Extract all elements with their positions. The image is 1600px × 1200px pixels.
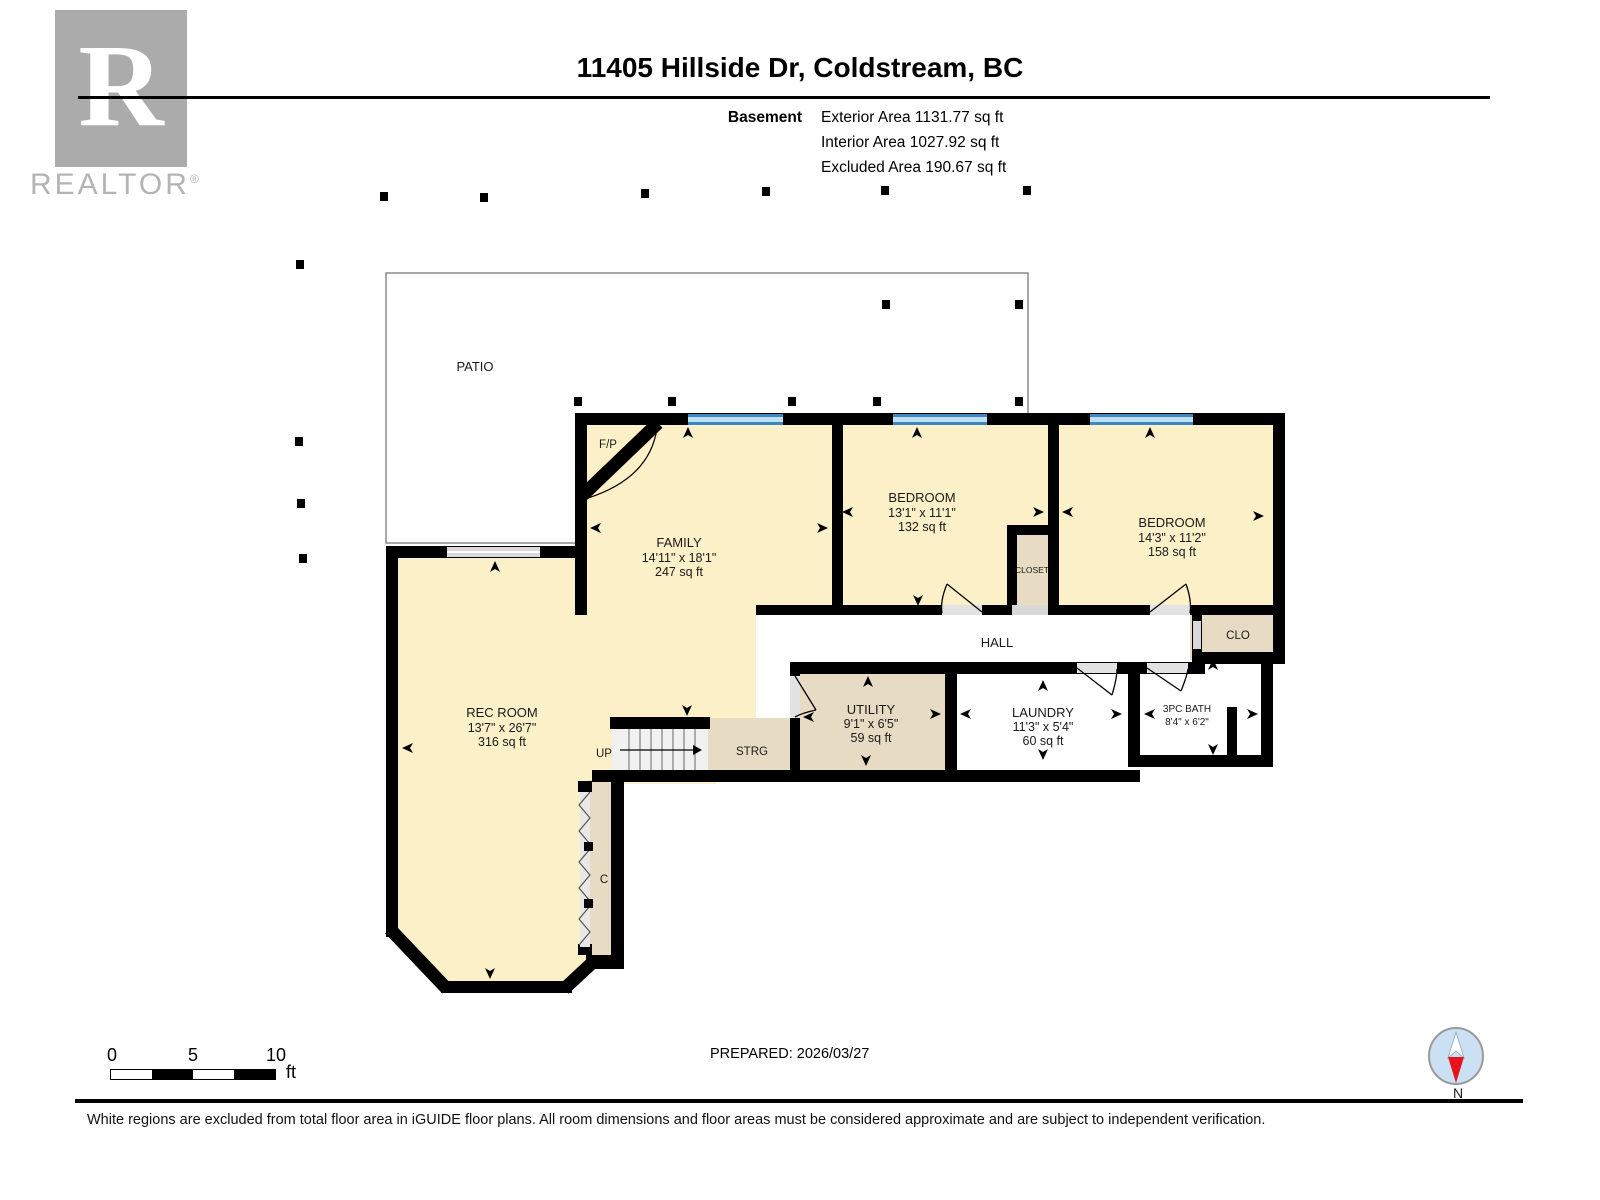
- rec-room-dims: 13'7" x 26'7": [468, 721, 537, 735]
- closet-opening: [1012, 605, 1048, 615]
- scale-tick-5: 5: [188, 1045, 198, 1066]
- bedroom2-name: BEDROOM: [1138, 515, 1205, 530]
- family-area: 247 sq ft: [655, 565, 703, 579]
- bedroom1-name: BEDROOM: [888, 490, 955, 505]
- utility-dims: 9'1" x 6'5": [844, 717, 899, 731]
- bedroom2-area: 158 sq ft: [1148, 545, 1196, 559]
- scale-bar: [110, 1069, 276, 1080]
- laundry-name: LAUNDRY: [1012, 705, 1074, 720]
- rec-room-fill: [386, 546, 596, 987]
- window-family: [688, 414, 783, 425]
- prepared-date: PREPARED: 2026/03/27: [710, 1046, 869, 1062]
- laundry-area: 60 sq ft: [1023, 734, 1065, 748]
- rec-room-name: REC ROOM: [466, 705, 538, 720]
- hall-label: HALL: [981, 635, 1014, 650]
- bedroom1-area: 132 sq ft: [898, 520, 946, 534]
- disclaimer-text: White regions are excluded from total fl…: [87, 1112, 1487, 1128]
- bedroom2-dims: 14'3" x 11'2": [1138, 531, 1206, 545]
- family-dims: 14'11" x 18'1": [642, 551, 717, 565]
- clo-label: CLO: [1226, 630, 1250, 642]
- stairs: [612, 729, 708, 770]
- utility-area: 59 sq ft: [851, 731, 893, 745]
- scale-tick-0: 0: [107, 1045, 117, 1066]
- utility-name: UTILITY: [847, 702, 896, 717]
- rec-room-area: 316 sq ft: [478, 735, 526, 749]
- c-closet-label: C: [600, 874, 608, 886]
- up-label: UP: [596, 748, 612, 760]
- floor-plan: PATIO F/P FAMILY 14'11" x 18'1" 247 sq f…: [0, 0, 1600, 1200]
- scale-unit: ft: [286, 1062, 296, 1083]
- closet-label: CLOSET: [1015, 565, 1049, 575]
- laundry-dims: 11'3" x 5'4": [1013, 720, 1074, 734]
- bedroom1-dims: 13'1" x 11'1": [888, 506, 956, 520]
- fireplace-label: F/P: [599, 439, 617, 451]
- laundry-door-opening: [1077, 663, 1117, 673]
- patio-label: PATIO: [456, 359, 493, 374]
- window-bedroom2: [1090, 414, 1193, 425]
- compass-icon: N: [1429, 1028, 1483, 1101]
- footer-rule: [75, 1099, 1523, 1103]
- strg-label: STRG: [736, 746, 768, 758]
- bath-name: 3PC BATH: [1163, 704, 1211, 715]
- clo-opening: [1193, 621, 1201, 649]
- scale-tick-10: 10: [266, 1045, 286, 1066]
- bedroom2-door-opening: [1150, 605, 1190, 615]
- bath-dims: 8'4" x 6'2": [1165, 717, 1209, 728]
- family-name: FAMILY: [656, 535, 702, 550]
- windows: [688, 414, 1193, 425]
- window-bedroom1: [893, 414, 987, 425]
